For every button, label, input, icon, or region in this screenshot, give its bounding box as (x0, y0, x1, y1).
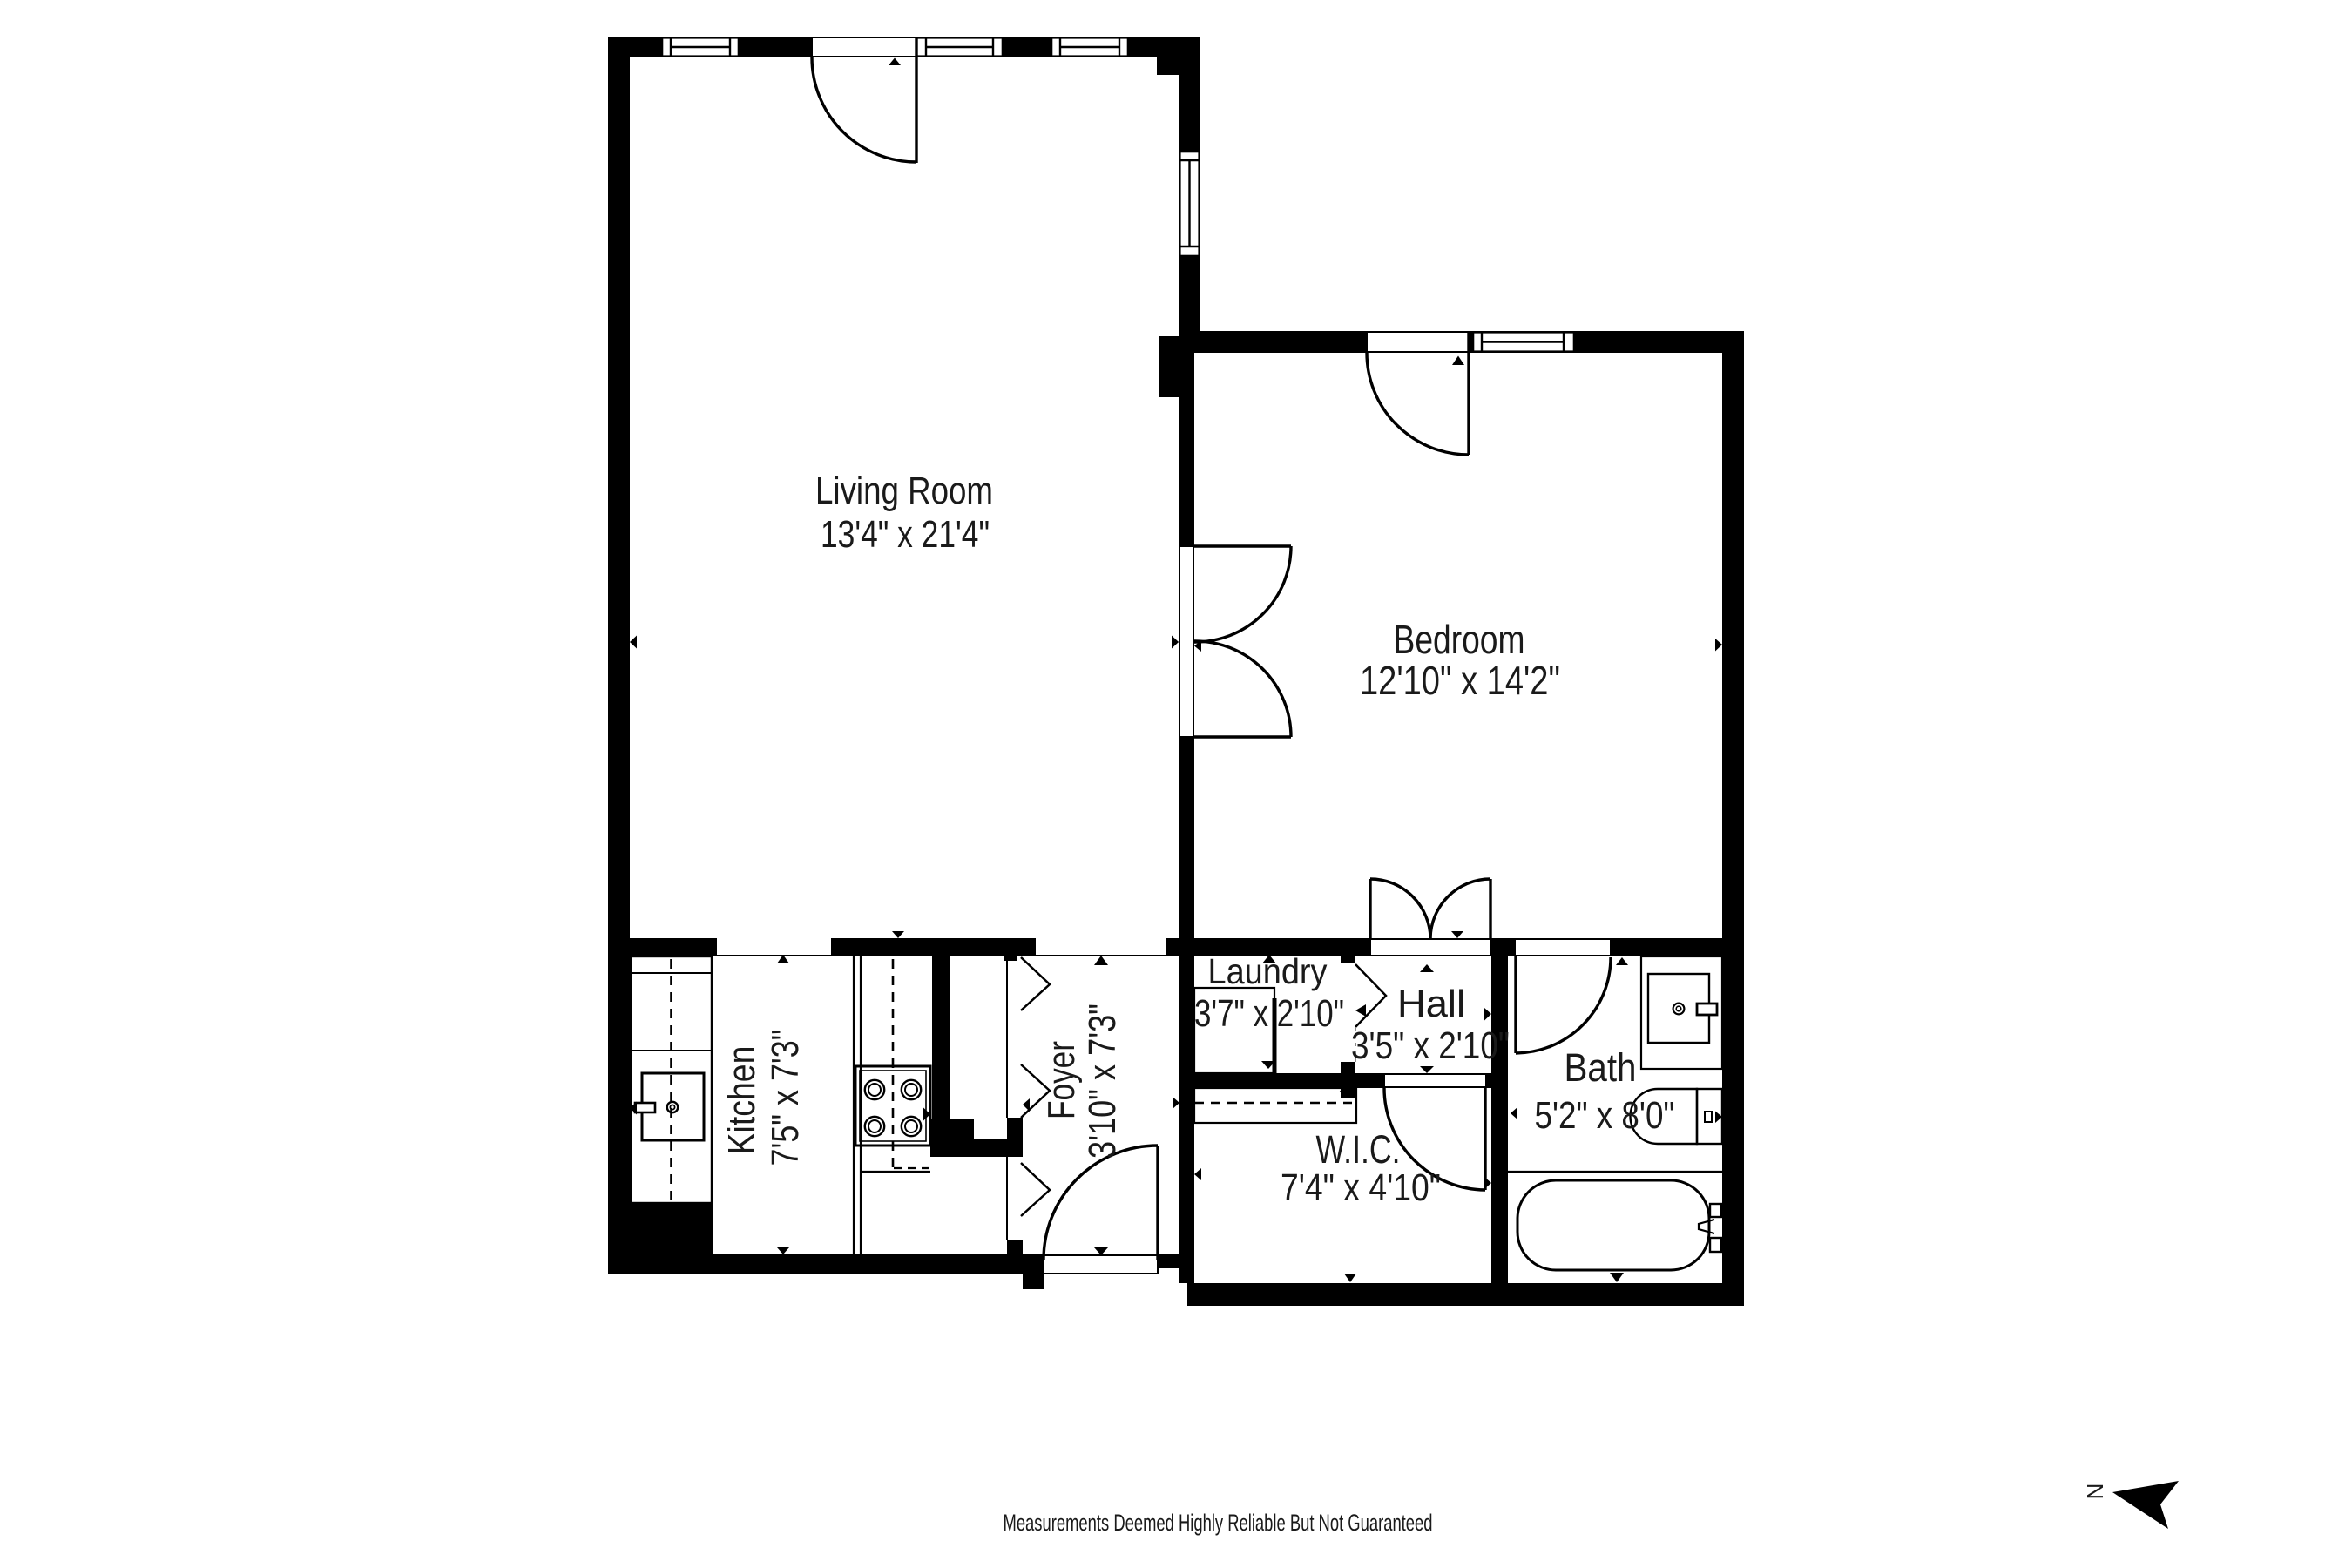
svg-text:Bedroom: Bedroom (1394, 617, 1525, 662)
svg-text:Laundry: Laundry (1208, 951, 1328, 991)
svg-text:7'4" x 4'10": 7'4" x 4'10" (1281, 1166, 1441, 1209)
svg-text:Foyer: Foyer (1040, 1041, 1083, 1119)
svg-text:N: N (2082, 1484, 2108, 1500)
svg-text:Kitchen: Kitchen (720, 1046, 763, 1155)
svg-text:7'5" x 7'3": 7'5" x 7'3" (764, 1030, 807, 1166)
svg-text:Measurements Deemed Highly Rel: Measurements Deemed Highly Reliable But … (1004, 1510, 1433, 1536)
svg-text:13'4" x 21'4": 13'4" x 21'4" (821, 513, 990, 556)
svg-text:12'10" x 14'2": 12'10" x 14'2" (1360, 658, 1560, 703)
svg-text:5'2" x 8'0": 5'2" x 8'0" (1535, 1094, 1675, 1137)
svg-text:Hall: Hall (1397, 983, 1465, 1025)
svg-text:3'5" x 2'10": 3'5" x 2'10" (1351, 1024, 1510, 1067)
svg-text:Bath: Bath (1565, 1045, 1637, 1090)
svg-text:Living Room: Living Room (815, 470, 993, 512)
svg-text:W.I.C.: W.I.C. (1316, 1127, 1401, 1172)
svg-text:3'10" x 7'3": 3'10" x 7'3" (1081, 1004, 1124, 1159)
svg-text:3'7" x 2'10": 3'7" x 2'10" (1194, 992, 1344, 1035)
